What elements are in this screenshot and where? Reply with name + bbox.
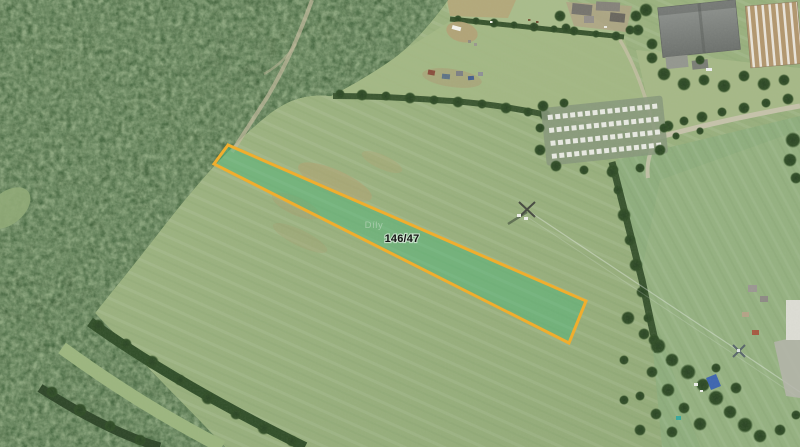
parcel-number-label: 146/47 — [385, 233, 420, 245]
aerial-map[interactable]: Díly 146/47 — [0, 0, 800, 447]
map-viewport[interactable]: Díly 146/47 — [0, 0, 800, 447]
place-name-label: Díly — [365, 220, 384, 231]
